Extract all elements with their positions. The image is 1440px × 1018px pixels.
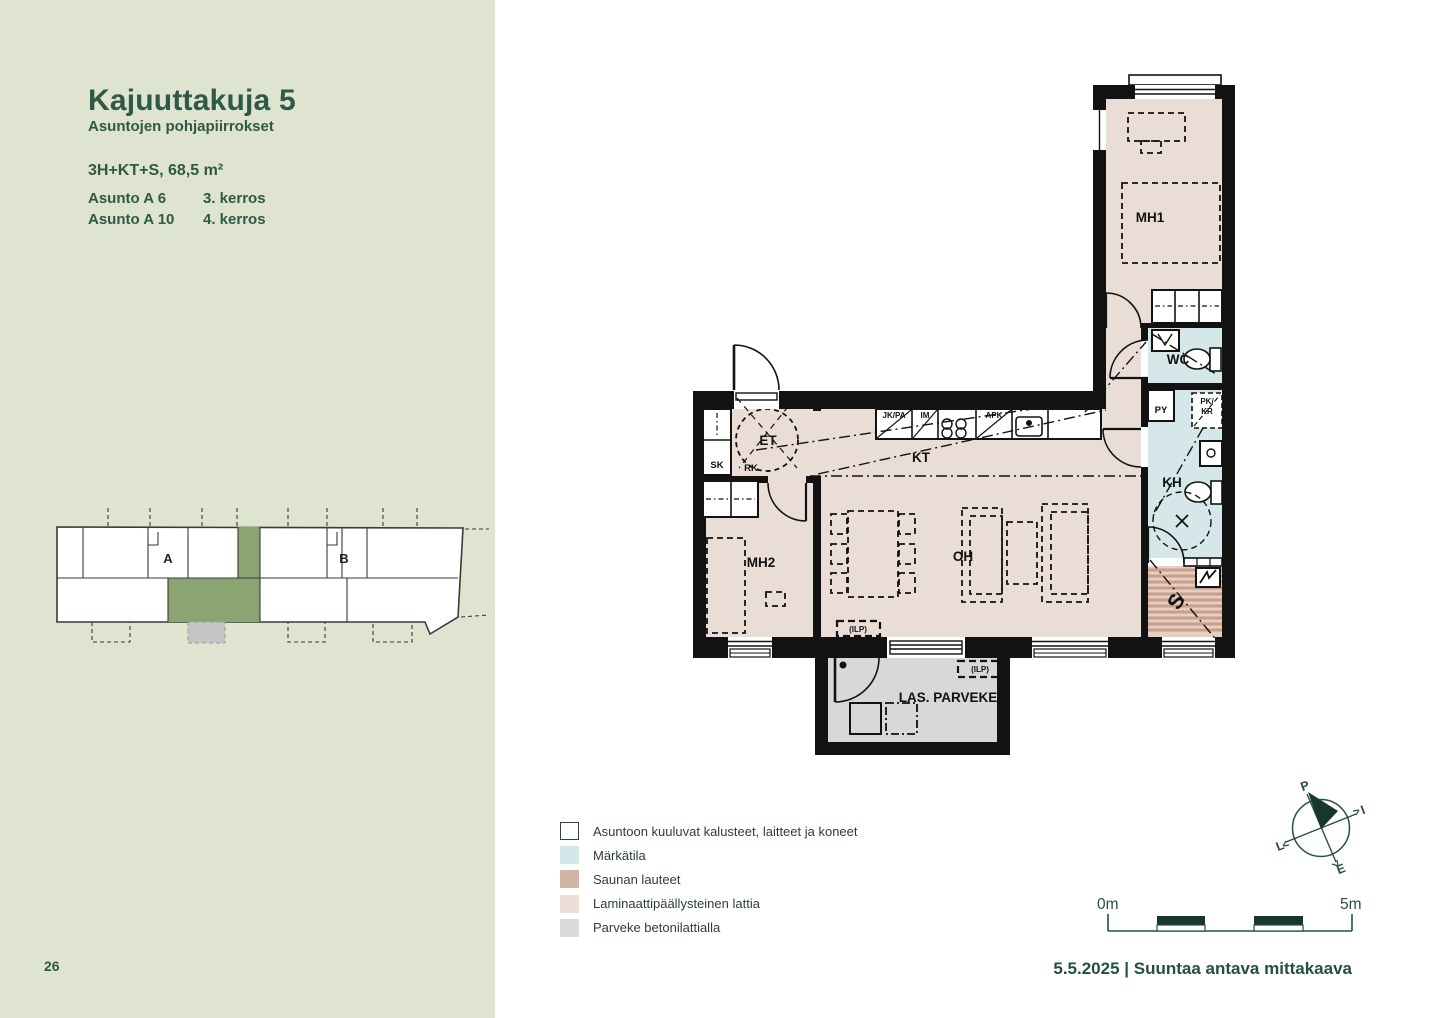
label-apk: APK: [986, 411, 1003, 420]
mh1-window: [1129, 75, 1221, 99]
mh1-side-window: [1093, 110, 1106, 150]
key-plan-stairwell-b: B: [339, 551, 348, 566]
scale-bar: 0m 5m: [1097, 896, 1362, 931]
sauna-window: [1162, 637, 1215, 658]
label-kh: KH: [1162, 475, 1182, 490]
label-et: ET: [759, 433, 777, 448]
key-plan-stairwell-a: A: [163, 551, 173, 566]
label-rk: RK: [744, 463, 758, 474]
entry-door: [734, 345, 779, 409]
label-mh2: MH2: [747, 555, 776, 570]
balcony-window: [887, 637, 965, 658]
label-py: PY: [1155, 405, 1168, 416]
label-im: IM: [921, 411, 930, 420]
sauna-glass-wall: [1184, 558, 1222, 566]
mh2-wardrobe: [703, 481, 758, 517]
label-oh: OH: [953, 549, 973, 564]
wc-toilet-icon: [1184, 348, 1221, 371]
sauna-heater-icon: [1196, 568, 1220, 587]
label-ilp-balcony: (ILP): [971, 665, 989, 674]
oh-window: [1032, 637, 1108, 658]
compass-south: E: [1335, 861, 1348, 877]
kh-basin-icon: [1200, 441, 1222, 466]
mh2-window: [728, 637, 772, 658]
scale-start: 0m: [1097, 896, 1119, 913]
scale-end: 5m: [1340, 896, 1362, 913]
label-jk-pa: JK/PA: [883, 411, 906, 420]
compass-north: P: [1299, 778, 1312, 794]
key-plan: A B: [57, 508, 489, 643]
key-plan-balcony: [188, 622, 225, 643]
label-kt: KT: [912, 450, 931, 465]
label-mh1: MH1: [1136, 210, 1165, 225]
label-sk: SK: [710, 460, 723, 471]
label-wc: WC: [1167, 352, 1190, 367]
kh-toilet-icon: [1185, 481, 1222, 504]
drawing-canvas: MH1 MH2 KT OH ET KH WC S LAS. PARVEKE SK…: [0, 0, 1440, 1018]
label-pk: PK/: [1200, 397, 1214, 406]
label-kr: KR: [1201, 407, 1213, 416]
label-balcony: LAS. PARVEKE: [899, 690, 998, 705]
mh1-wardrobe: [1152, 290, 1222, 323]
compass: P I L E: [1274, 778, 1367, 877]
compass-east: I: [1359, 803, 1367, 817]
label-ilp-living: (ILP): [849, 625, 867, 634]
